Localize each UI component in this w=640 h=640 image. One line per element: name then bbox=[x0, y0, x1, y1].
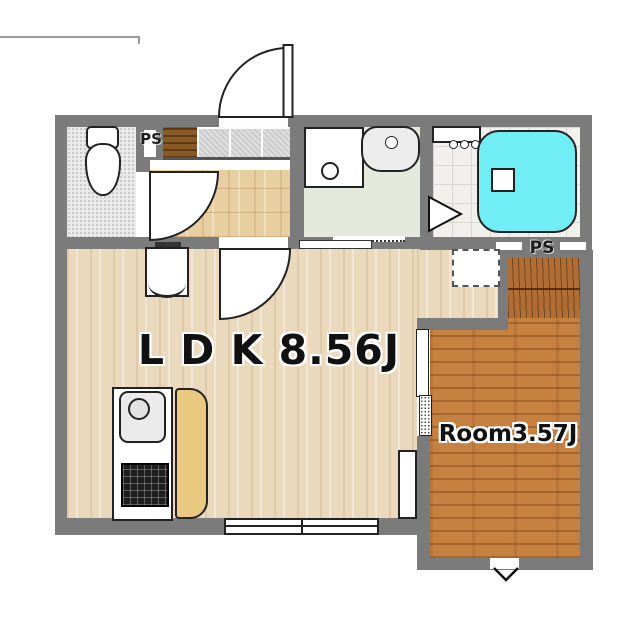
wall-washroom-left bbox=[290, 115, 304, 249]
wash-basin-icon bbox=[361, 126, 420, 172]
wall-toilet-right bbox=[136, 155, 150, 172]
wall-jog bbox=[417, 318, 508, 330]
window-tick-right bbox=[377, 518, 379, 535]
wall-left bbox=[55, 115, 67, 535]
hallway-floor bbox=[150, 170, 290, 237]
faucet-knob-icon bbox=[460, 140, 469, 149]
kitchen-counter bbox=[175, 388, 208, 519]
floor-plan: L D K 8.56J Room3.57J PS PS bbox=[0, 0, 640, 640]
storage-cabinet-icon bbox=[398, 450, 417, 519]
ps-label-right: PS bbox=[522, 238, 562, 258]
entrance-step bbox=[150, 160, 290, 170]
wall-top-left bbox=[55, 115, 219, 127]
washroom-sliding-door bbox=[299, 240, 372, 249]
sliding-door-panel-hatched bbox=[419, 395, 432, 436]
entrance-door-leaf bbox=[284, 45, 293, 117]
vent-notch bbox=[490, 558, 519, 569]
shoe-cabinet bbox=[163, 127, 197, 158]
boundary-line-tick bbox=[138, 36, 140, 44]
room-closet bbox=[508, 258, 580, 318]
window-tick-left bbox=[224, 518, 226, 535]
ps-strip-right bbox=[560, 242, 586, 250]
wall-right-room bbox=[580, 250, 593, 570]
ldk-label: L D K 8.56J bbox=[124, 326, 414, 374]
air-conditioner-icon bbox=[452, 249, 500, 287]
ps-label-top: PS bbox=[136, 130, 166, 148]
entrance-door-swing bbox=[219, 48, 288, 117]
wall-mid-left bbox=[55, 237, 219, 249]
gas-stove-icon bbox=[121, 463, 169, 507]
window-tick-center bbox=[301, 518, 303, 535]
sliding-door-panel bbox=[416, 329, 429, 397]
faucet-knob-icon bbox=[449, 140, 458, 149]
wall-bathroom-left bbox=[420, 127, 433, 237]
boundary-line bbox=[0, 36, 140, 38]
basin-drain-icon bbox=[385, 136, 398, 149]
washing-machine-drain-icon bbox=[321, 162, 339, 180]
closet-hanger-pipe bbox=[508, 288, 580, 290]
toilet-doorway bbox=[136, 172, 150, 237]
entrance-doorway bbox=[219, 115, 288, 127]
wall-divider-lower bbox=[417, 436, 430, 570]
wall-right-upper bbox=[580, 115, 592, 250]
room-label: Room3.57J bbox=[434, 421, 582, 447]
bath-step-icon bbox=[491, 168, 515, 192]
sink-drain-icon bbox=[128, 398, 150, 420]
ldk-doorway bbox=[219, 237, 288, 249]
entrance-tile-floor bbox=[197, 127, 290, 158]
